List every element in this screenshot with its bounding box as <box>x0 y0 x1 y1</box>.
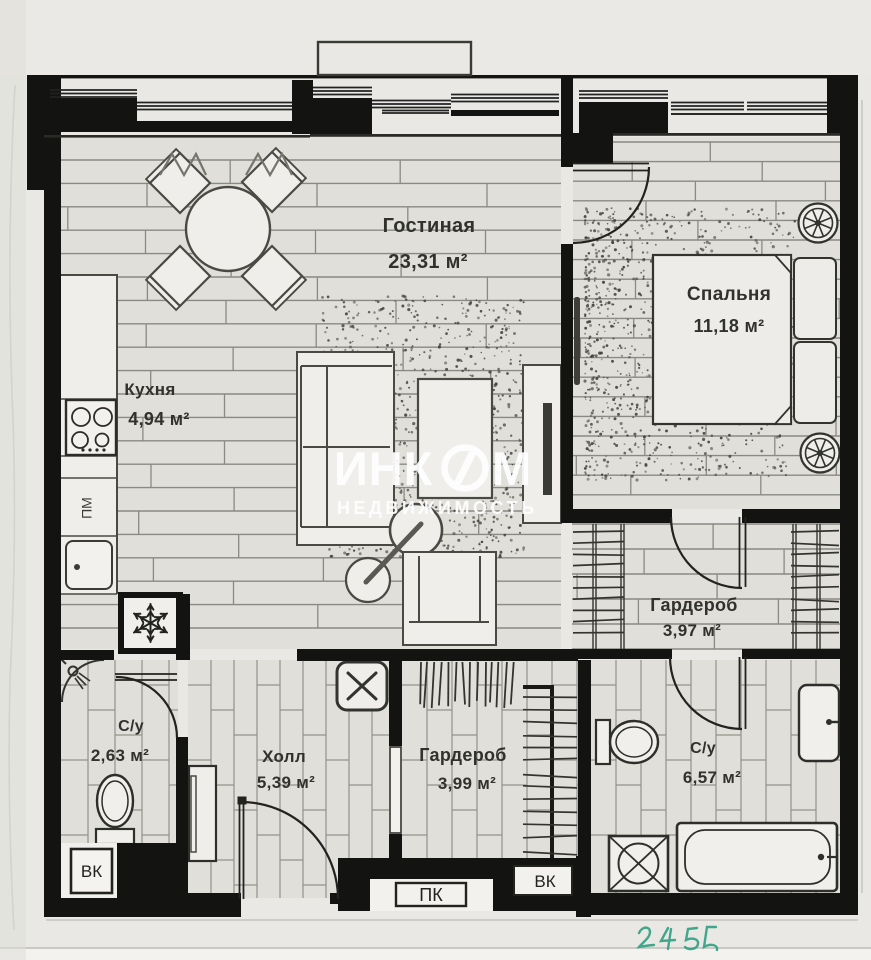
svg-text:3,97 м²: 3,97 м² <box>663 621 721 640</box>
svg-text:С/у: С/у <box>690 740 716 757</box>
svg-text:2,63 м²: 2,63 м² <box>91 746 149 765</box>
svg-text:Гардероб: Гардероб <box>650 595 737 615</box>
svg-text:Холл: Холл <box>262 747 306 766</box>
svg-text:6,57 м²: 6,57 м² <box>683 768 741 787</box>
svg-text:5,39 м²: 5,39 м² <box>257 773 315 792</box>
svg-text:Гардероб: Гардероб <box>419 745 506 765</box>
svg-text:М: М <box>492 442 531 495</box>
svg-text:23,31 м²: 23,31 м² <box>388 251 468 273</box>
svg-text:ПМ: ПМ <box>79 497 95 519</box>
svg-text:ВК: ВК <box>81 862 102 881</box>
svg-text:ВК: ВК <box>534 872 555 891</box>
svg-text:ПК: ПК <box>419 885 443 905</box>
svg-text:4,94 м²: 4,94 м² <box>128 409 189 429</box>
svg-text:11,18 м²: 11,18 м² <box>694 316 765 336</box>
svg-text:С/у: С/у <box>118 718 144 735</box>
svg-text:3,99 м²: 3,99 м² <box>438 774 496 793</box>
svg-text:Спальня: Спальня <box>687 284 771 305</box>
svg-text:Гостиная: Гостиная <box>383 215 476 237</box>
svg-text:Кухня: Кухня <box>124 380 175 399</box>
svg-text:ИНК: ИНК <box>334 442 433 495</box>
